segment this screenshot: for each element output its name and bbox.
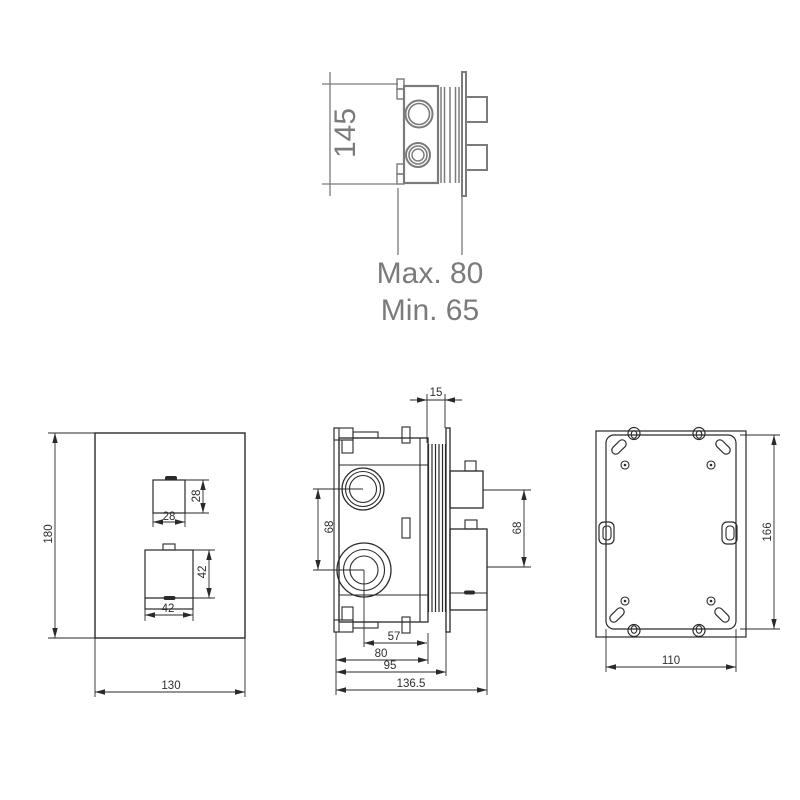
wall-plate	[462, 72, 466, 196]
small-knob-marker	[165, 476, 177, 481]
dim-180-label: 180	[43, 524, 55, 543]
dim-80-label: 80	[375, 648, 388, 660]
corner-slot	[713, 606, 731, 624]
front-view: 28 28 42 42 180 130	[43, 433, 245, 697]
corner-slot	[714, 438, 732, 456]
keyhole-slot	[693, 625, 705, 637]
dim-110-label: 110	[662, 655, 680, 667]
clip	[342, 607, 353, 620]
dim-166-label: 166	[762, 522, 774, 541]
installation-depth-view: 145 Max. 80 Min. 65	[322, 72, 487, 327]
dim-42-width-label: 42	[162, 603, 175, 615]
dim-max-depth-label: Max. 80	[377, 257, 484, 290]
dim-68-ports-label: 68	[324, 521, 336, 534]
dim-68-handles-label: 68	[512, 522, 524, 535]
keyhole-slot	[628, 625, 640, 637]
keyhole-slot	[693, 428, 705, 440]
dim-57-label: 57	[388, 631, 401, 643]
upper-handle	[466, 97, 487, 122]
valve-dimension-drawing: 145 Max. 80 Min. 65	[0, 0, 800, 800]
lower-port-inner	[412, 149, 424, 161]
large-knob-front	[145, 550, 193, 609]
body-lug	[402, 427, 410, 443]
dim-28-width-label: 28	[163, 511, 176, 523]
trim-stack-side	[429, 444, 446, 612]
side-tab	[722, 522, 737, 544]
dim-42-height-label: 42	[197, 566, 209, 579]
lower-handle	[466, 145, 487, 170]
upper-port-ring	[409, 104, 430, 125]
large-knob-button	[163, 544, 175, 550]
large-knob-marker	[164, 596, 176, 600]
dim-145-label: 145	[329, 108, 362, 158]
dim-130-label: 130	[161, 680, 180, 692]
body-lug	[402, 518, 410, 538]
mounting-bar	[353, 622, 378, 628]
small-knob-side	[450, 471, 483, 508]
upper-port	[406, 101, 433, 128]
dim-95-label: 95	[384, 660, 397, 672]
dim-min-depth-label: Min. 65	[381, 294, 479, 327]
large-knob-side	[450, 529, 487, 610]
corner-slot	[608, 606, 626, 624]
dim-28-height-label: 28	[191, 490, 203, 503]
side-view: 15 68 68 57 80 95 136.5	[313, 387, 531, 695]
large-knob-button-side	[465, 520, 477, 529]
keyhole-slot	[628, 428, 640, 440]
dim-136-5-label: 136.5	[397, 678, 426, 690]
large-knob-marker-side	[464, 591, 475, 595]
dim-15-label: 15	[430, 387, 443, 399]
trim-stack	[441, 87, 459, 183]
corner-slot	[610, 438, 628, 456]
box-outer-rear	[596, 431, 746, 637]
back-view: 166 110	[596, 428, 780, 673]
body-lug	[402, 617, 410, 633]
small-knob-button	[465, 461, 476, 471]
screw-holes	[621, 461, 715, 605]
small-knob-front	[153, 480, 185, 513]
clip	[342, 440, 353, 453]
mounting-bar	[353, 432, 378, 438]
technical-drawing-sheet: 145 Max. 80 Min. 65	[0, 0, 800, 800]
